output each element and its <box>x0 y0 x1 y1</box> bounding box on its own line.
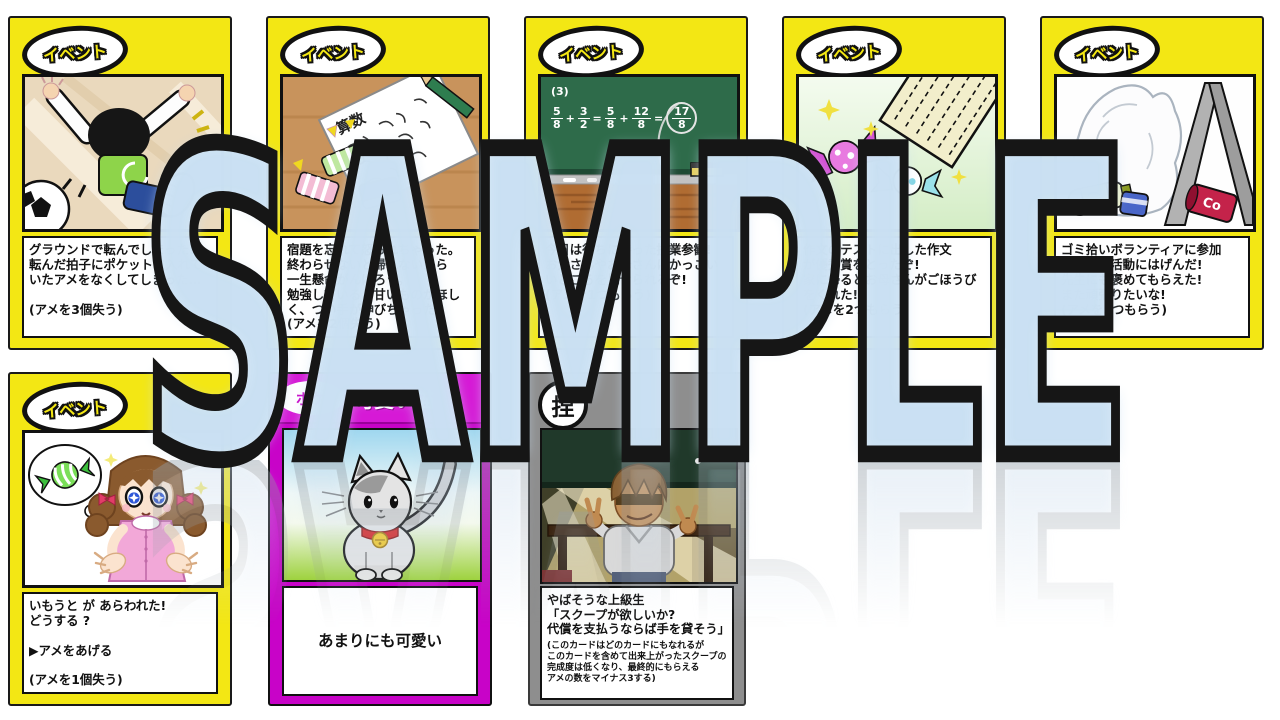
page-root: { "watermark": { "text": "SAMPLE", "stro… <box>0 0 1280 720</box>
event-badge: イベント <box>20 22 129 81</box>
event-badge-label: イベント <box>1074 38 1140 66</box>
event-badge-label: イベント <box>300 38 366 66</box>
event-badge-label: イベント <box>816 38 882 66</box>
event-badge: イベント <box>20 378 129 437</box>
sample-watermark: SAMPLE <box>140 100 1128 520</box>
event-badge-label: イベント <box>42 394 108 422</box>
event-badge-label: イベント <box>558 38 624 66</box>
event-badge-label: イベント <box>42 38 108 66</box>
